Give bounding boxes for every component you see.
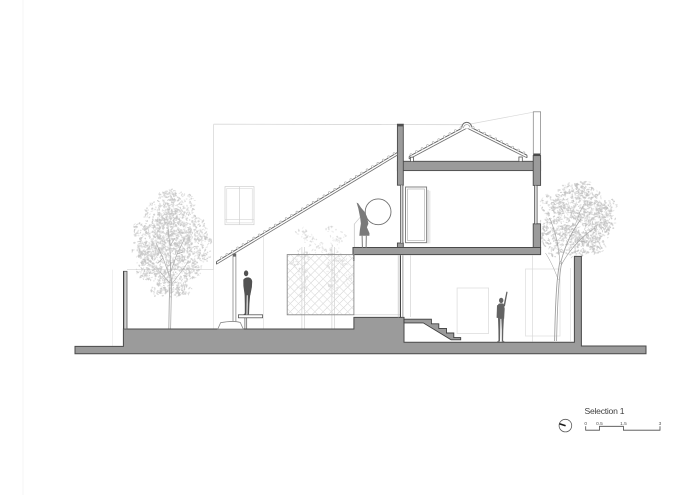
svg-text:Selection 1: Selection 1: [585, 406, 625, 416]
svg-text:1.5: 1.5: [620, 421, 627, 427]
svg-text:0.5: 0.5: [596, 421, 603, 427]
svg-text:3: 3: [659, 421, 662, 427]
svg-text:0: 0: [584, 421, 587, 427]
